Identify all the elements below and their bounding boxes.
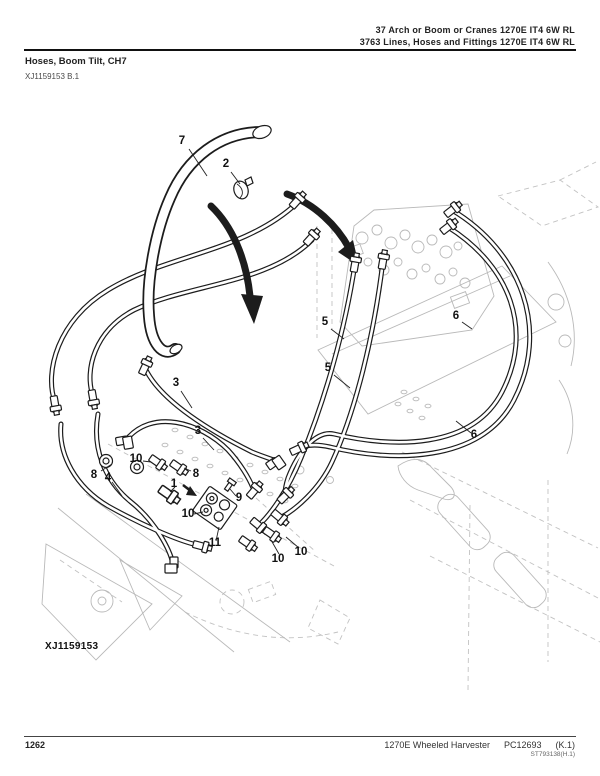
parts-catalog-page: 37 Arch or Boom or Cranes 1270E IT4 6W R… (0, 0, 600, 776)
hose-parts-diagram: 7 2 5 5 6 6 3 3 10 8 4 8 1 9 10 11 10 10… (0, 0, 600, 776)
fittings (48, 189, 464, 573)
callout-8a: 8 (91, 469, 98, 481)
callout-9: 9 (236, 492, 242, 504)
footer-doc-code: ST793138(H.1) (384, 751, 575, 758)
callout-4: 4 (105, 472, 112, 484)
callout-10d: 10 (295, 546, 308, 558)
footer-right: 1270E Wheeled HarvesterPC12693(K.1) ST79… (384, 740, 575, 758)
callout-3b: 3 (195, 425, 201, 437)
footer-revision: (K.1) (555, 740, 575, 750)
callout-5a: 5 (322, 316, 329, 328)
footer-divider (24, 736, 576, 737)
callout-6b: 6 (471, 429, 477, 441)
callout-3a: 3 (173, 377, 179, 389)
footer-model: 1270E Wheeled Harvester (384, 740, 490, 750)
callout-10a: 10 (130, 453, 143, 465)
callout-6a: 6 (453, 310, 459, 322)
footer-model-line: 1270E Wheeled HarvesterPC12693(K.1) (384, 740, 575, 750)
callout-2: 2 (223, 158, 229, 170)
callout-1: 1 (171, 478, 178, 490)
figure-label: XJ1159153 (45, 641, 98, 652)
callout-11: 11 (209, 537, 222, 549)
clip (232, 177, 253, 201)
manifold-block (192, 486, 237, 530)
callout-7: 7 (179, 135, 185, 147)
callout-5b: 5 (325, 362, 332, 374)
footer-catalog-number: PC12693 (504, 740, 542, 750)
callout-10c: 10 (272, 553, 285, 565)
callout-8b: 8 (193, 468, 200, 480)
callout-10b: 10 (182, 508, 195, 520)
machine-ghost-lines (42, 162, 600, 690)
page-number: 1262 (25, 740, 45, 750)
